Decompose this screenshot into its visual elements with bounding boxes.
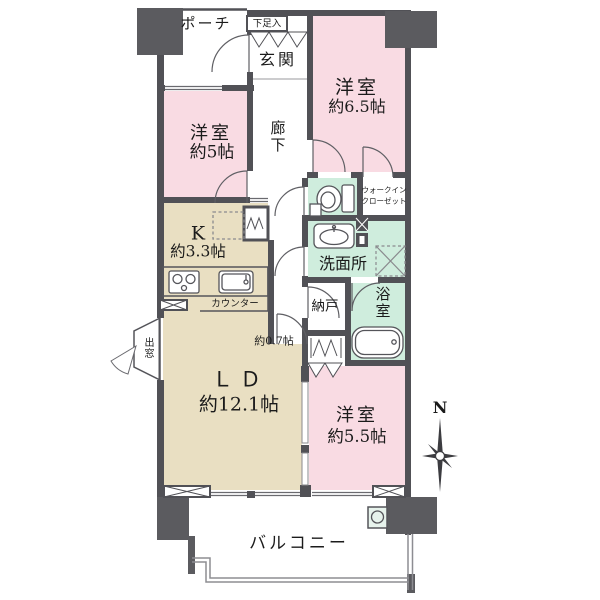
- label-bedroom-5-name: 洋室: [190, 125, 232, 143]
- label-storage-size: 約0.7帖: [254, 336, 294, 347]
- label-bay-window: 出窓: [142, 337, 152, 359]
- hall-closet: [244, 207, 268, 240]
- label-counter: カウンター: [211, 299, 259, 309]
- label-kitchen-size: 約3.3帖: [170, 244, 226, 260]
- kitchen-sink-icon: [219, 271, 253, 293]
- label-compass-north: N: [433, 400, 448, 416]
- label-porch: ポーチ: [180, 17, 231, 32]
- entrance-door: [212, 35, 249, 72]
- washroom-door: [275, 247, 304, 276]
- label-kitchen-name: K: [191, 225, 205, 244]
- label-shoe-cabinet: 下足入: [253, 19, 282, 29]
- label-hallway: 廊下: [270, 120, 285, 154]
- compass-rose-icon: [422, 418, 458, 492]
- label-ld-size: 約12.1帖: [199, 396, 279, 415]
- label-bedroom-5-5-name: 洋室: [336, 407, 378, 425]
- balcony-wall-stub-left: [188, 536, 195, 574]
- label-ld-name: ＬＤ: [212, 370, 268, 391]
- toilet-door: [275, 187, 304, 216]
- bathtub-icon: [352, 327, 403, 358]
- room-ld-extension: [268, 344, 302, 490]
- sliding-door: [302, 382, 308, 485]
- stove-icon: [169, 271, 199, 293]
- label-storage-name: 納戸: [312, 300, 339, 314]
- floor-plan-drawing: [0, 0, 600, 600]
- label-balcony: バルコニー: [249, 536, 349, 553]
- label-entrance: 玄関: [259, 52, 297, 68]
- label-wic-line1: ウォークイン: [362, 186, 407, 194]
- floor-plan: ポーチ 下足入 玄関 廊下 洋室 約6.5帖 洋室 約5帖 ウォークイン クロー…: [0, 0, 600, 600]
- wash-basin-icon: [314, 224, 354, 248]
- slop-sink-icon: [368, 507, 387, 528]
- label-bedroom-6-5-size: 約6.5帖: [328, 99, 385, 115]
- label-washroom: 洗面所: [319, 256, 367, 272]
- label-bedroom-5-size: 約5帖: [190, 145, 235, 162]
- label-bathroom: 浴室: [375, 286, 390, 320]
- label-wic-line2: クローゼット: [362, 197, 407, 205]
- label-bedroom-5-5-size: 約5.5帖: [327, 429, 386, 446]
- label-bedroom-6-5-name: 洋室: [335, 79, 379, 98]
